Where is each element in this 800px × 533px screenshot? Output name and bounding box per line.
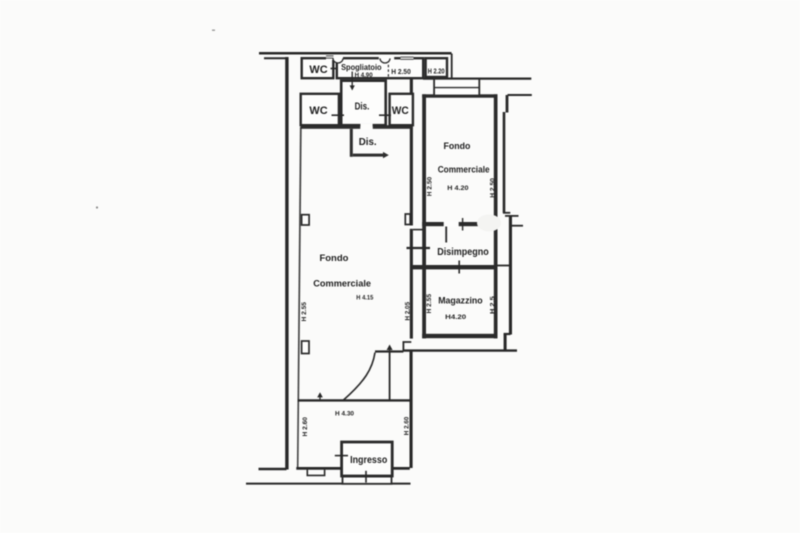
svg-text:Disimpegno: Disimpegno bbox=[437, 247, 489, 258]
svg-text:H 2.55: H 2.55 bbox=[426, 293, 433, 313]
svg-text:Fondo: Fondo bbox=[320, 253, 349, 264]
svg-text:H 2.60: H 2.60 bbox=[403, 416, 410, 435]
svg-text:H 2.20: H 2.20 bbox=[428, 68, 445, 75]
svg-text:H 4.30: H 4.30 bbox=[335, 411, 354, 418]
svg-text:Commerciale: Commerciale bbox=[438, 165, 490, 176]
svg-text:H 2.05: H 2.05 bbox=[404, 301, 411, 320]
svg-text:H 2.55: H 2.55 bbox=[301, 302, 308, 322]
svg-text:H 2.50: H 2.50 bbox=[426, 176, 433, 196]
svg-text:Spogliatoio: Spogliatoio bbox=[341, 62, 382, 72]
svg-text:H 4.90: H 4.90 bbox=[355, 72, 374, 79]
svg-text:H4.20: H4.20 bbox=[445, 314, 466, 321]
svg-text:H 2.60: H 2.60 bbox=[302, 417, 309, 437]
svg-text:Fondo: Fondo bbox=[444, 141, 471, 152]
svg-text:WC: WC bbox=[309, 64, 327, 76]
svg-text:Magazzino: Magazzino bbox=[438, 296, 483, 306]
svg-text:H 4.20: H 4.20 bbox=[447, 185, 468, 192]
svg-text:Dis.: Dis. bbox=[359, 136, 377, 148]
svg-text:WC: WC bbox=[392, 105, 409, 117]
svg-text:WC: WC bbox=[309, 105, 327, 117]
svg-text:Dis.: Dis. bbox=[355, 101, 370, 113]
svg-text:Commerciale: Commerciale bbox=[313, 279, 371, 290]
svg-text:Ingresso: Ingresso bbox=[350, 455, 387, 466]
svg-text:H 2.5: H 2.5 bbox=[490, 296, 497, 314]
svg-text:H 4.15: H 4.15 bbox=[356, 295, 373, 302]
svg-text:H 2.50: H 2.50 bbox=[391, 69, 411, 76]
svg-text:H 2.50: H 2.50 bbox=[490, 178, 497, 198]
